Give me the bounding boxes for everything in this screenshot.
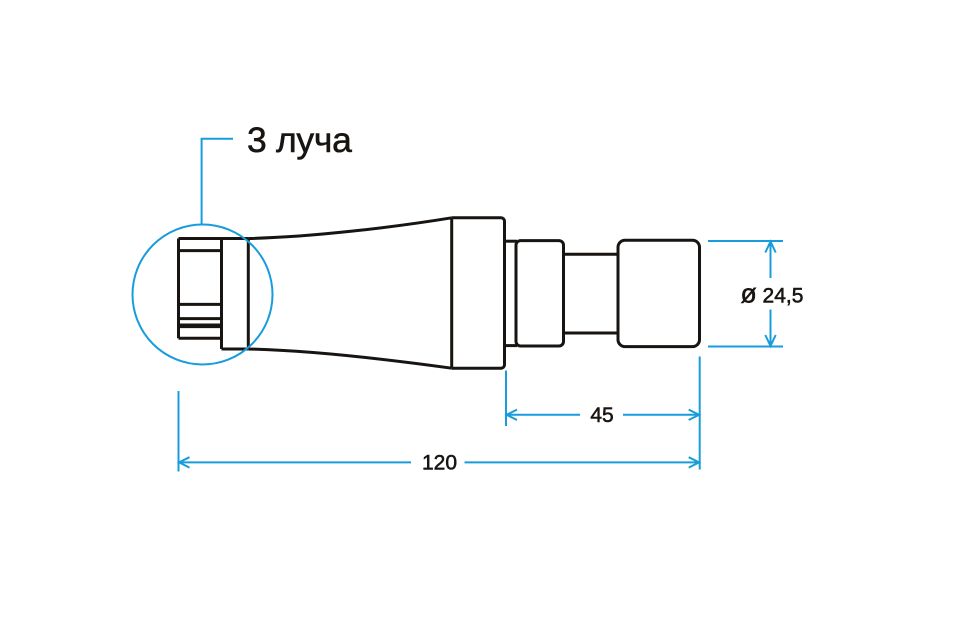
svg-text:120: 120 [422, 452, 457, 475]
svg-text:45: 45 [590, 404, 613, 427]
svg-text:3 луча: 3 луча [247, 120, 352, 160]
